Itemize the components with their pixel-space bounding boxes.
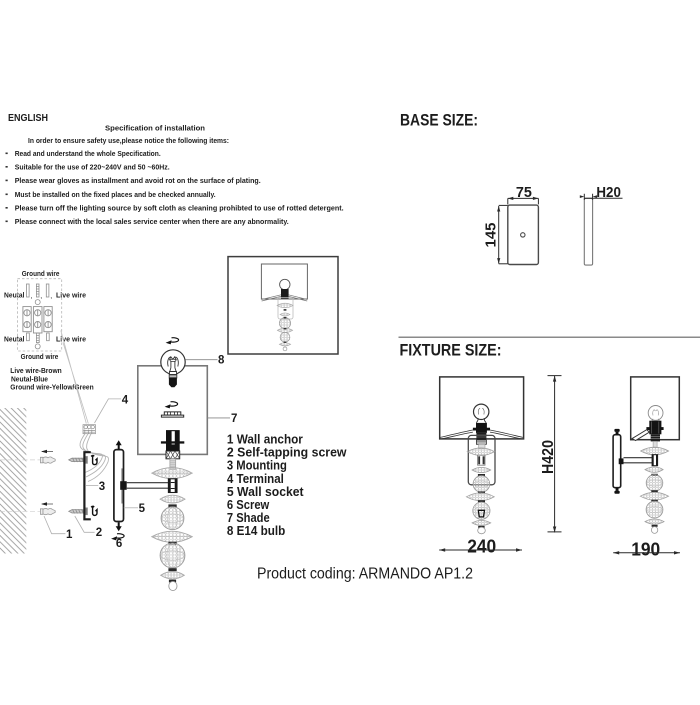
svg-text:Specification of installation: Specification of installation [105, 123, 205, 132]
svg-text:5 Wall socket: 5 Wall socket [227, 485, 305, 499]
svg-text:7 Shade: 7 Shade [227, 511, 270, 525]
svg-text:,: , [40, 293, 42, 300]
svg-text:8: 8 [218, 355, 225, 367]
svg-text:Product coding: ARMANDO AP1.2: Product coding: ARMANDO AP1.2 [257, 566, 473, 583]
svg-text:190: 190 [631, 539, 660, 559]
svg-text:Ground wire: Ground wire [21, 352, 59, 361]
svg-text:H20: H20 [596, 184, 621, 201]
svg-text:Ground wire: Ground wire [22, 269, 60, 278]
svg-text:Please turn off the lighting s: Please turn off the lighting source by s… [15, 204, 344, 213]
svg-text:2: 2 [96, 527, 102, 539]
svg-text:Neutal: Neutal [4, 291, 25, 300]
svg-text:3 Mounting: 3 Mounting [227, 459, 287, 473]
svg-text:Please connect with the local: Please connect with the local sales serv… [15, 217, 289, 226]
svg-text:FIXTURE SIZE:: FIXTURE SIZE: [400, 341, 502, 360]
svg-text:7: 7 [231, 413, 237, 425]
svg-text:In order to ensure safety use,: In order to ensure safety use,please not… [28, 136, 229, 145]
svg-text:Must be installed on the fixed: Must be installed on the fixed places an… [15, 190, 216, 199]
svg-text:3: 3 [99, 481, 105, 493]
svg-text:1: 1 [66, 529, 73, 541]
svg-text:8 E14 bulb: 8 E14 bulb [227, 524, 286, 538]
svg-text:4: 4 [122, 395, 129, 407]
svg-text:Neutal: Neutal [4, 335, 25, 344]
svg-text:Suitable for the use of 220~24: Suitable for the use of 220~240V and 50 … [15, 163, 170, 172]
svg-text:BASE SIZE:: BASE SIZE: [400, 110, 478, 129]
svg-text:6: 6 [116, 538, 122, 550]
svg-text:145: 145 [483, 223, 500, 248]
svg-text:Please wear gloves as installm: Please wear gloves as installment and av… [15, 176, 261, 185]
svg-text:4 Terminal: 4 Terminal [227, 472, 284, 486]
svg-text:Ground wire-Yellow/Green: Ground wire-Yellow/Green [10, 383, 94, 392]
svg-text:2 Self-tapping screw: 2 Self-tapping screw [227, 446, 347, 460]
svg-text:240: 240 [467, 536, 496, 556]
svg-text:ENGLISH: ENGLISH [8, 113, 48, 124]
svg-text:1 Wall anchor: 1 Wall anchor [227, 433, 303, 447]
svg-text:H420: H420 [540, 440, 557, 474]
svg-text:,: , [31, 293, 33, 300]
svg-text:,: , [50, 293, 52, 300]
svg-text:Live wire: Live wire [56, 291, 86, 300]
svg-text:5: 5 [139, 503, 146, 515]
svg-text:Read and understand the whole: Read and understand the whole Specificat… [15, 149, 161, 158]
svg-text:Live wire: Live wire [56, 335, 86, 344]
svg-text:6 Screw: 6 Screw [227, 498, 270, 512]
